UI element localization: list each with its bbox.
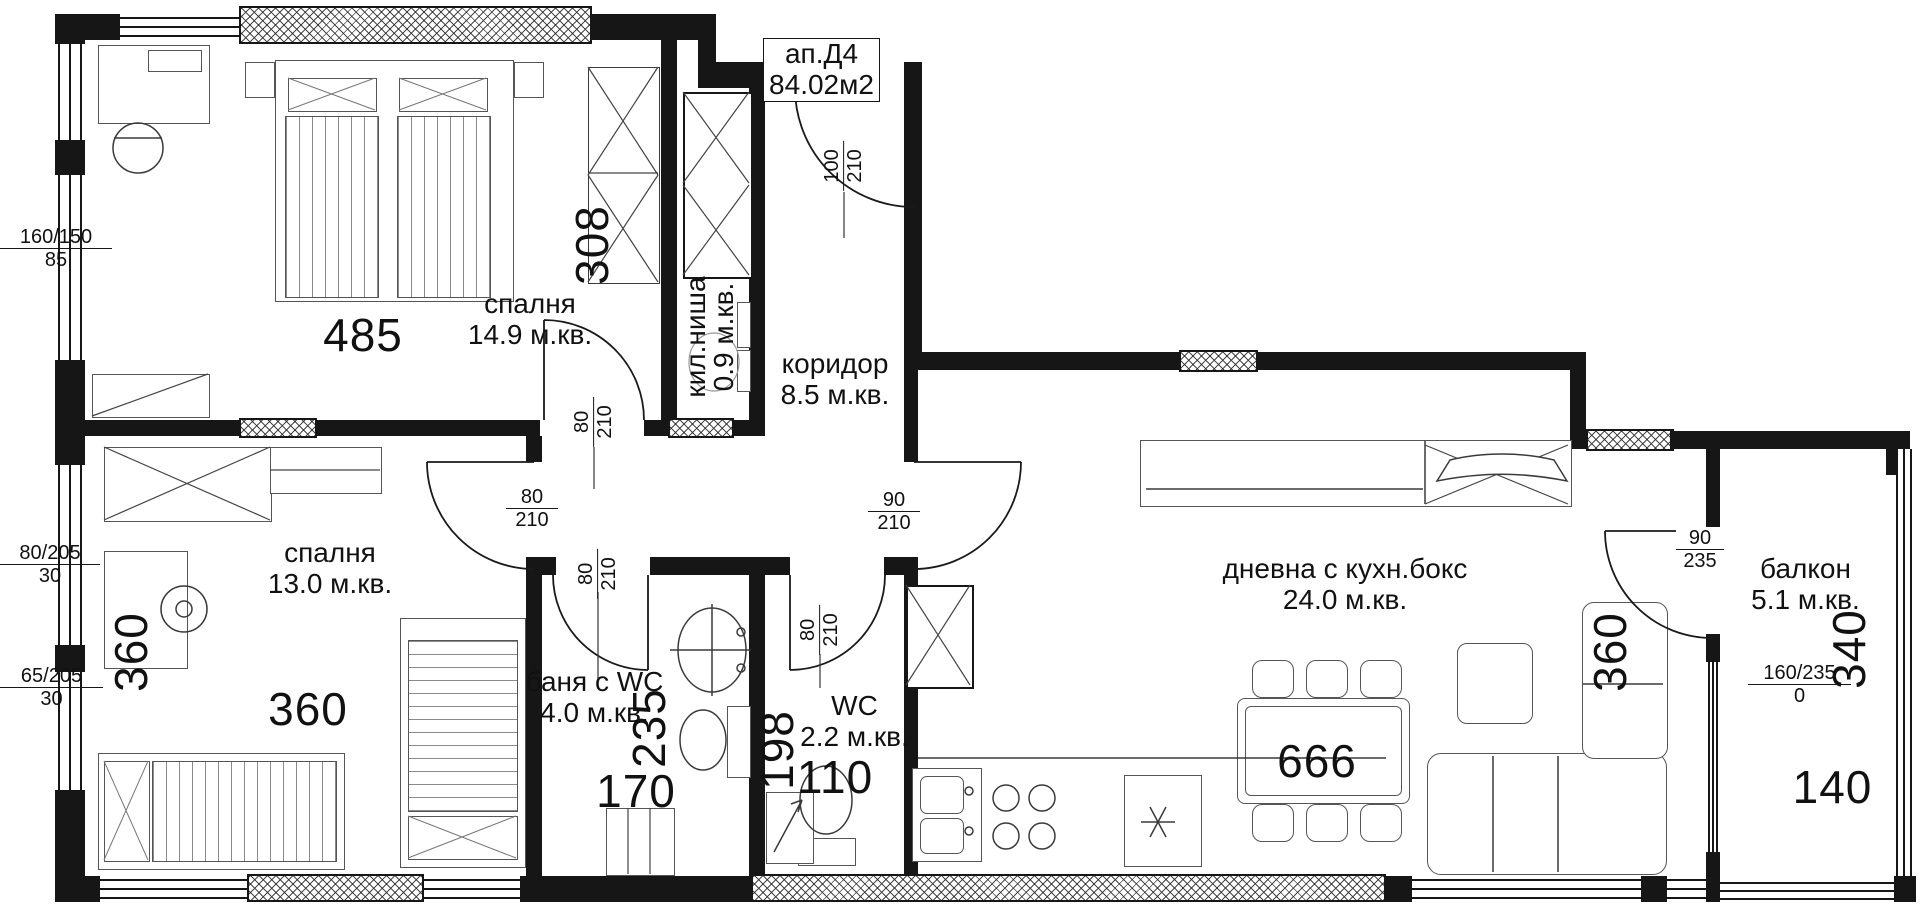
wall [904,62,922,370]
window [58,44,82,140]
room-label-bedroom2: спалня 13.0 м.кв. [245,537,415,600]
window [1667,879,1706,899]
hatch-pier [247,874,424,902]
apartment-area: 84.02м2 [769,70,874,101]
toilet-bowl [680,710,726,770]
door-label-bedroom2: 80 210 [506,486,558,532]
wall [526,436,542,462]
dresser [92,374,210,418]
sink-bowl [920,818,964,854]
door-label-living: 90 210 [868,489,920,535]
balcony-railing [1720,882,1894,900]
door-label-wc: 80 210 [797,605,843,655]
dim-bedroom2-height: 360 [106,612,156,692]
pillow [408,816,518,860]
wall [734,420,765,436]
laundry-rack [606,808,675,876]
dining-chair [1306,804,1348,842]
burner [993,823,1019,849]
wall [1894,876,1916,902]
window-label-balcony: 160/235 0 [1748,662,1851,708]
cabinet [270,447,382,494]
toilet-tank [727,706,751,778]
dim-bedroom1-width: 485 [318,310,408,362]
window [1412,879,1641,899]
window [100,879,247,899]
nightstand [514,62,544,98]
wall [904,352,1179,370]
balcony-railing [1896,449,1912,882]
room-label-bedroom1: спалня 14.9 м.кв. [440,288,620,351]
wall [904,370,918,462]
window [1708,662,1718,852]
mattress [285,116,379,298]
room-label-balcony: балкон 5.1 м.кв. [1738,553,1873,616]
wall [698,14,716,88]
wall [317,420,540,436]
door-label-entrance: 100 210 [821,141,867,191]
oven [1124,775,1202,867]
wall [55,420,239,436]
burner [993,785,1019,811]
dim-bath-height: 235 [624,688,674,768]
hatch-pier [668,418,734,438]
door-living [914,462,1021,569]
wall [55,14,120,40]
window-label-bedroom2-b: 65/205 30 [0,665,103,711]
title-block: ап.Д4 84.02м2 [763,38,880,102]
room-label-wc: WC 2.2 м.кв. [797,690,912,753]
wall [1258,352,1570,370]
pillow [399,78,488,112]
dim-living-height: 360 [1585,612,1635,692]
hatch-pier [1179,350,1258,372]
wall [650,557,790,575]
coffee-table [1457,643,1533,724]
dim-living-width: 666 [1257,736,1377,788]
wall [644,420,668,436]
apartment-id: ап.Д4 [785,39,858,70]
window-label-bedroom2-a: 80/205 30 [0,542,100,588]
office-chair [113,123,163,173]
shaft [683,92,753,279]
window-label-bedroom1: 160/150 85 [0,226,112,272]
dining-chair [1306,660,1348,698]
basin-tap [737,628,745,636]
wall [55,876,100,902]
wash-basin [678,608,746,692]
hatch-pier [751,874,1386,902]
wall [55,360,85,465]
pillow [104,761,150,862]
hatch-pier [239,6,592,44]
wall [55,790,85,876]
dim-wc-width: 110 [790,752,880,804]
sofa [1427,753,1667,875]
basin-tap [737,664,745,672]
room-label-corridor: коридор 8.5 м.кв. [775,348,895,411]
window [424,879,520,899]
mattress [152,761,337,862]
wall [661,14,677,420]
dim-bath-width: 170 [596,766,676,818]
dim-wardrobe-depth: 308 [567,205,617,285]
dim-bedroom2-width: 360 [258,684,358,736]
wall [1386,876,1412,902]
mattress [397,116,491,298]
wall [1570,352,1586,449]
tv-sideboard [1140,440,1572,507]
wall [1706,634,1720,662]
wall [1670,431,1886,449]
room-label-living: дневна с кухн.бокс 24.0 м.кв. [1205,553,1485,616]
window [120,17,239,37]
wall [520,876,751,902]
wall [884,557,918,575]
dining-chair [1252,804,1294,842]
burner [1029,823,1055,849]
dim-balcony-width: 140 [1785,762,1880,814]
door-label-bedroom1: 80 210 [571,397,617,447]
door-label-balcony: 90 235 [1676,527,1724,573]
monitor [148,50,202,72]
wardrobe [104,447,272,522]
door-label-bathroom: 80 210 [575,549,621,599]
hatch-pier [239,418,317,438]
pillow [288,78,377,112]
mattress [408,640,518,812]
room-label-closet: кил.ниша 0.9 м.кв. [682,272,742,402]
burner [1029,785,1055,811]
floorplan-canvas: ап.Д4 84.02м2 спалня 14.9 м.кв. кил.ниша… [0,0,1920,904]
hatch-pier [1586,429,1674,451]
wall [1641,876,1667,902]
dining-chair [1252,660,1294,698]
dining-chair [1360,804,1402,842]
wall [1706,876,1720,902]
dining-chair [1360,660,1402,698]
basin-crosslines [670,604,751,696]
sink-bowl [920,776,964,814]
wall [1706,431,1720,527]
nightstand [245,62,275,98]
shaft [906,585,974,689]
wall [1706,852,1720,876]
wall [55,140,85,175]
